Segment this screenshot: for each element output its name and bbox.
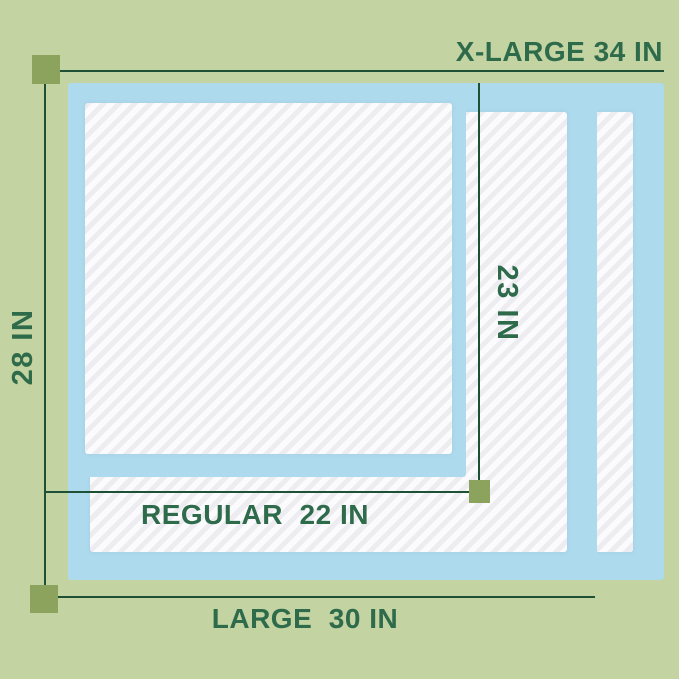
xlarge-width-label: X-LARGE 34 IN — [456, 38, 663, 66]
large-width-label: LARGE 30 IN — [125, 605, 485, 633]
pad-size-diagram: X-LARGE 34 IN 28 IN 23 IN REGULAR 22 IN … — [0, 0, 679, 679]
corner-marker-top-left — [32, 55, 60, 84]
pad-regular-core — [85, 103, 452, 454]
height-28-dimension-line — [44, 84, 46, 585]
xlarge-width-dimension-line — [60, 70, 664, 72]
corner-marker-bottom-left — [30, 585, 58, 613]
regular-height-label: 23 IN — [492, 238, 522, 368]
xlarge-height-label: 28 IN — [8, 282, 38, 412]
regular-width-dimension-line — [46, 491, 470, 493]
corner-marker-regular — [469, 480, 490, 503]
regular-width-label: REGULAR 22 IN — [100, 501, 410, 529]
regular-height-dimension-line — [478, 83, 480, 481]
large-width-dimension-line — [58, 596, 595, 598]
